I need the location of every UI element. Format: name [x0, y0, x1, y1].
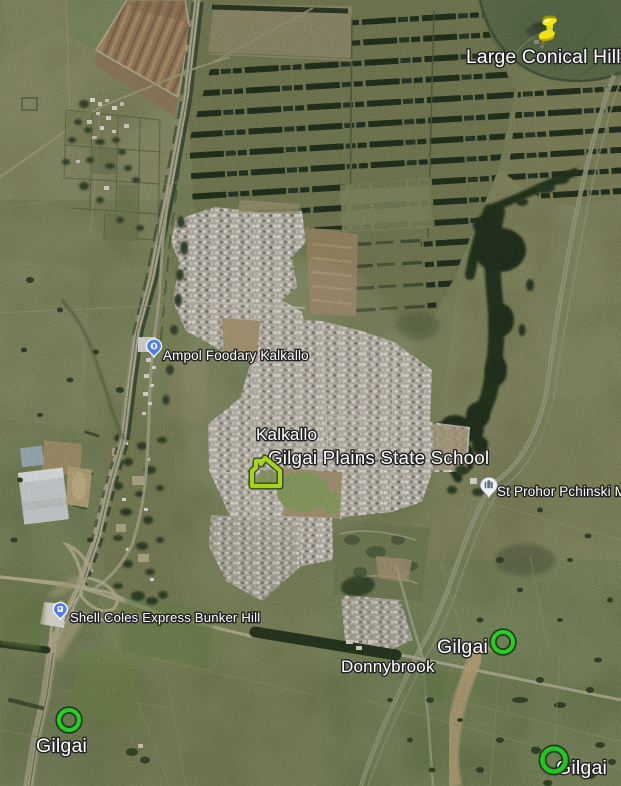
svg-text:Gilgai: Gilgai	[36, 735, 87, 757]
svg-text:Kalkallo: Kalkallo	[256, 425, 317, 444]
svg-text:Donnybrook: Donnybrook	[341, 657, 435, 676]
svg-text:Gilgai: Gilgai	[437, 636, 488, 658]
svg-text:St Prohor Pchinski M: St Prohor Pchinski M	[497, 484, 621, 499]
svg-text:Ampol Foodary Kalkallo: Ampol Foodary Kalkallo	[163, 348, 309, 363]
svg-text:Large Conical Hill: Large Conical Hill	[466, 47, 621, 68]
svg-text:Gilgai Plains State School: Gilgai Plains State School	[268, 447, 489, 468]
svg-text:Shell Coles Express Bunker Hil: Shell Coles Express Bunker Hill	[70, 610, 260, 625]
